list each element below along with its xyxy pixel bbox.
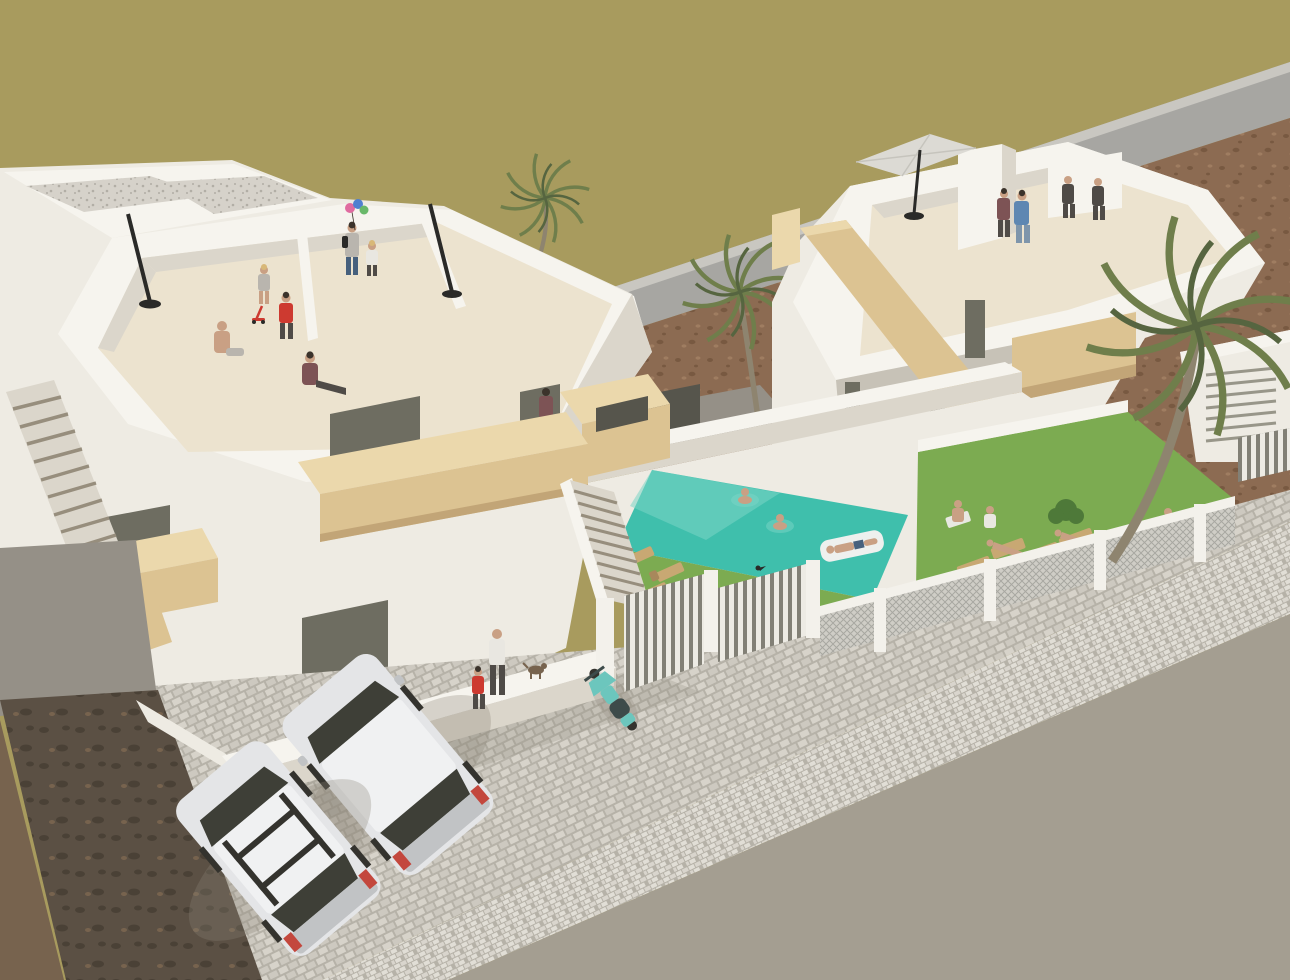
balloon (360, 206, 369, 215)
render-image (0, 0, 1290, 980)
fence-post (984, 559, 996, 621)
gate-pillar (704, 570, 718, 652)
fence-post (874, 588, 886, 652)
facade-door-dark (965, 300, 985, 358)
fence-post (1194, 504, 1206, 562)
roof-access-box (958, 144, 1002, 250)
fence-post (1094, 530, 1106, 590)
wood-wedge (772, 208, 800, 270)
fence-pillar (806, 560, 820, 638)
left-gray-court (0, 540, 158, 716)
parasol-base (904, 212, 924, 220)
